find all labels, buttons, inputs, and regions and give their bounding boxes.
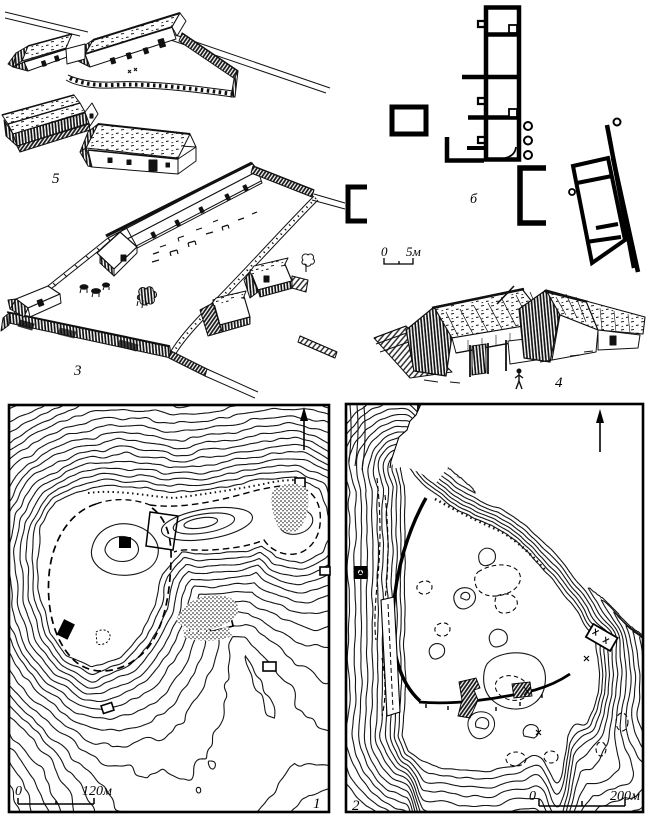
svg-text:200м: 200м — [610, 789, 640, 804]
svg-text:5: 5 — [52, 171, 60, 187]
svg-text:0: 0 — [15, 784, 22, 799]
svg-text:3: 3 — [73, 363, 82, 379]
svg-text:4: 4 — [555, 375, 563, 391]
svg-text:120м: 120м — [82, 784, 112, 799]
svg-text:0: 0 — [381, 244, 388, 259]
svg-text:1: 1 — [313, 796, 321, 812]
svg-text:б: б — [470, 192, 478, 207]
svg-text:5м: 5м — [406, 244, 421, 259]
svg-text:2: 2 — [352, 798, 360, 814]
svg-text:0: 0 — [529, 789, 536, 804]
